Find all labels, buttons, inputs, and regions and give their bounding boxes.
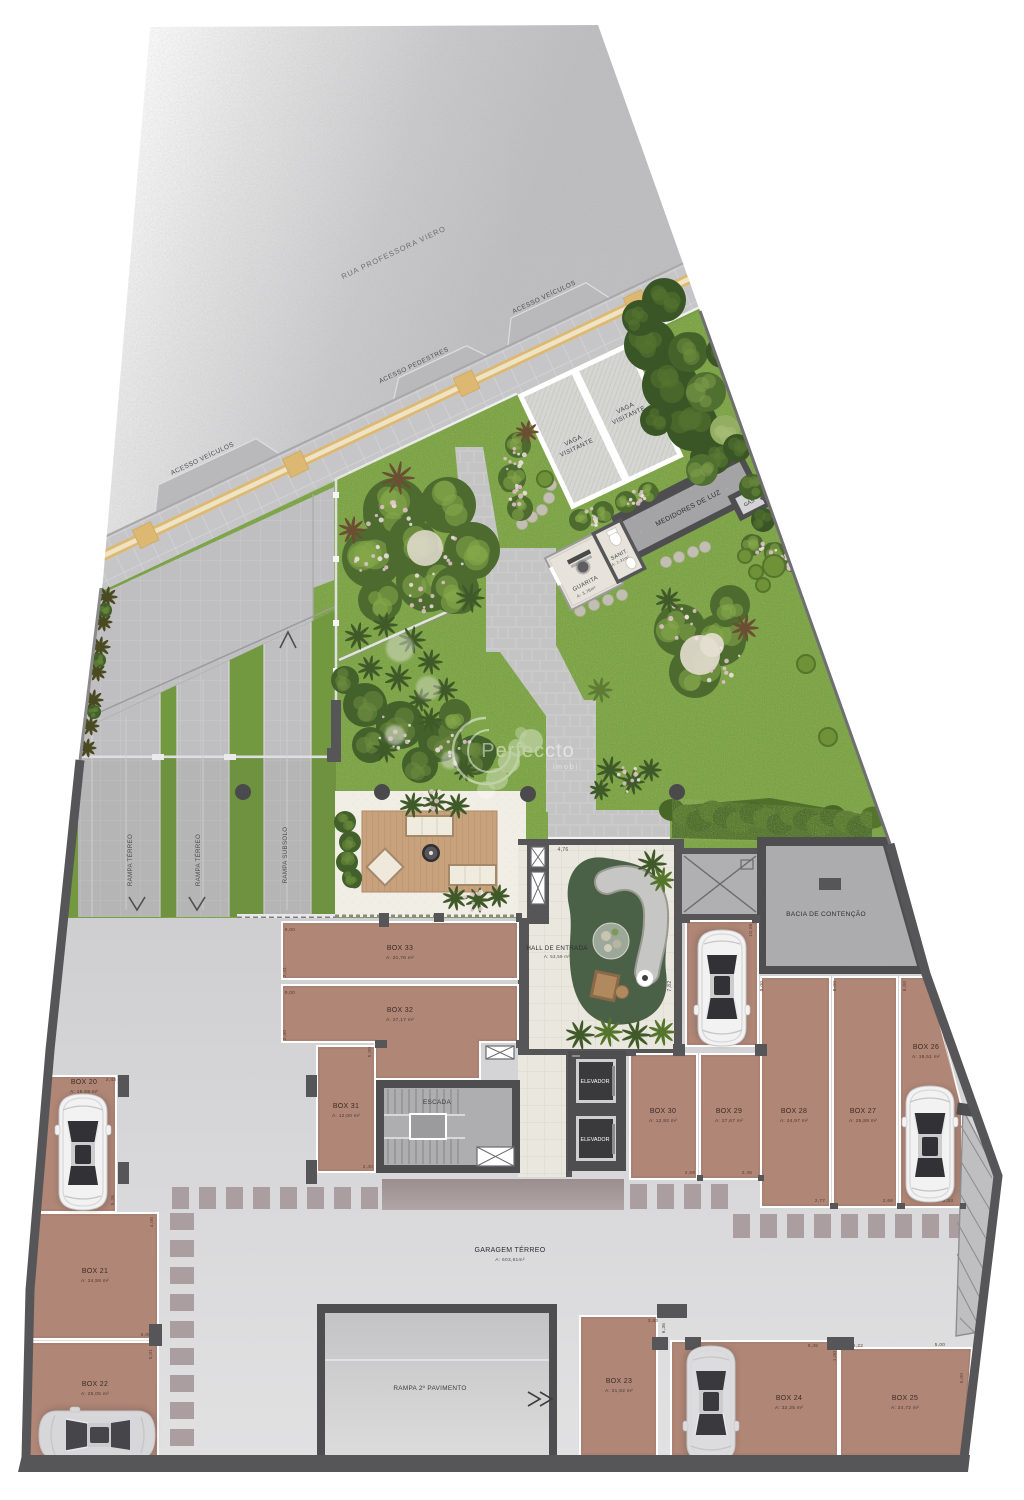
svg-text:imobi: imobi: [553, 764, 580, 771]
svg-text:BOX 20: BOX 20: [71, 1079, 97, 1086]
svg-text:8,45: 8,45: [808, 1343, 819, 1349]
svg-text:A: 21,82 m²: A: 21,82 m²: [605, 1388, 633, 1394]
svg-text:A: 32,25 m²: A: 32,25 m²: [775, 1405, 803, 1411]
svg-text:RAMPA 2º PAVIMENTO: RAMPA 2º PAVIMENTO: [393, 1385, 466, 1392]
svg-text:Perfeccto: Perfeccto: [481, 740, 574, 762]
svg-text:BOX 32: BOX 32: [387, 1007, 413, 1014]
svg-text:5,01: 5,01: [148, 1349, 154, 1360]
svg-text:2,66: 2,66: [883, 1198, 894, 1204]
svg-text:9,00: 9,00: [832, 981, 838, 992]
svg-text:9,00: 9,00: [285, 990, 296, 996]
svg-text:BOX 27: BOX 27: [850, 1108, 876, 1115]
svg-text:4,06: 4,06: [149, 1217, 155, 1228]
svg-text:HALL DE ENTRADA: HALL DE ENTRADA: [526, 945, 588, 952]
svg-text:6,36: 6,36: [661, 1323, 667, 1334]
svg-text:RAMPA TÉRREO: RAMPA TÉRREO: [195, 834, 202, 886]
svg-text:RAMPA SUBSOLO: RAMPA SUBSOLO: [282, 827, 289, 884]
svg-text:ELEVADOR: ELEVADOR: [581, 1137, 610, 1143]
svg-text:A: 12,00 m²: A: 12,00 m²: [332, 1113, 360, 1119]
svg-text:9,00: 9,00: [759, 981, 765, 992]
svg-text:2,77: 2,77: [815, 1198, 826, 1204]
svg-text:2,41: 2,41: [282, 967, 288, 978]
svg-text:BOX 22: BOX 22: [82, 1381, 108, 1388]
svg-text:5,00: 5,00: [367, 1047, 373, 1058]
svg-text:BOX 26: BOX 26: [913, 1044, 939, 1051]
svg-text:BOX 28: BOX 28: [781, 1108, 807, 1115]
svg-text:1,00: 1,00: [832, 1351, 838, 1362]
svg-text:BACIA DE CONTENÇÃO: BACIA DE CONTENÇÃO: [786, 909, 866, 918]
svg-text:3,83: 3,83: [648, 1318, 659, 1324]
svg-text:A: 53,59 m²: A: 53,59 m²: [544, 954, 570, 959]
svg-text:A: 27,17 m²: A: 27,17 m²: [386, 1017, 414, 1023]
svg-text:BOX 23: BOX 23: [606, 1378, 632, 1385]
svg-text:5,00: 5,00: [935, 1342, 946, 1348]
svg-text:A: 24,97 m²: A: 24,97 m²: [780, 1118, 808, 1124]
svg-text:BOX 25: BOX 25: [892, 1395, 918, 1402]
svg-text:BOX 29: BOX 29: [716, 1108, 742, 1115]
svg-text:GARAGEM TÉRREO: GARAGEM TÉRREO: [475, 1245, 546, 1254]
svg-text:9,00: 9,00: [285, 927, 296, 933]
svg-text:BOX 21: BOX 21: [82, 1268, 108, 1275]
svg-text:BOX 31: BOX 31: [333, 1103, 359, 1110]
svg-text:A: 24,58 m²: A: 24,58 m²: [81, 1278, 109, 1284]
svg-text:5,26: 5,26: [110, 1195, 116, 1206]
svg-text:BOX 24: BOX 24: [776, 1395, 802, 1402]
svg-text:BOX 30: BOX 30: [650, 1108, 676, 1115]
svg-text:2,43: 2,43: [106, 1077, 117, 1083]
svg-text:A: 603,61m²: A: 603,61m²: [495, 1257, 525, 1263]
svg-text:A: 12,92 m²: A: 12,92 m²: [649, 1118, 677, 1124]
svg-text:ESCADA: ESCADA: [423, 1099, 452, 1106]
svg-text:2,59: 2,59: [685, 1170, 696, 1176]
svg-text:5,00: 5,00: [959, 1373, 965, 1384]
svg-text:9,00: 9,00: [902, 981, 908, 992]
svg-text:7,82: 7,82: [667, 981, 673, 992]
svg-text:2,45: 2,45: [742, 1170, 753, 1176]
svg-text:10,06: 10,06: [748, 923, 754, 937]
svg-text:A: 24,72 m²: A: 24,72 m²: [891, 1405, 919, 1411]
svg-text:A: 19,51 m²: A: 19,51 m²: [912, 1054, 940, 1060]
svg-text:2,40: 2,40: [363, 1164, 374, 1170]
svg-text:ELEVADOR: ELEVADOR: [581, 1079, 610, 1085]
svg-text:2,40: 2,40: [282, 1030, 288, 1041]
svg-text:4,76: 4,76: [558, 847, 569, 853]
svg-text:RAMPA TÉRREO: RAMPA TÉRREO: [127, 834, 134, 886]
svg-text:A: 25,88 m²: A: 25,88 m²: [849, 1118, 877, 1124]
svg-text:A: 21,76 m²: A: 21,76 m²: [386, 955, 414, 961]
svg-text:A: 25,05 m²: A: 25,05 m²: [81, 1391, 109, 1397]
svg-text:BOX 33: BOX 33: [387, 945, 413, 952]
svg-text:6,22: 6,22: [853, 1343, 864, 1349]
svg-text:A: 27,67 m²: A: 27,67 m²: [715, 1118, 743, 1124]
